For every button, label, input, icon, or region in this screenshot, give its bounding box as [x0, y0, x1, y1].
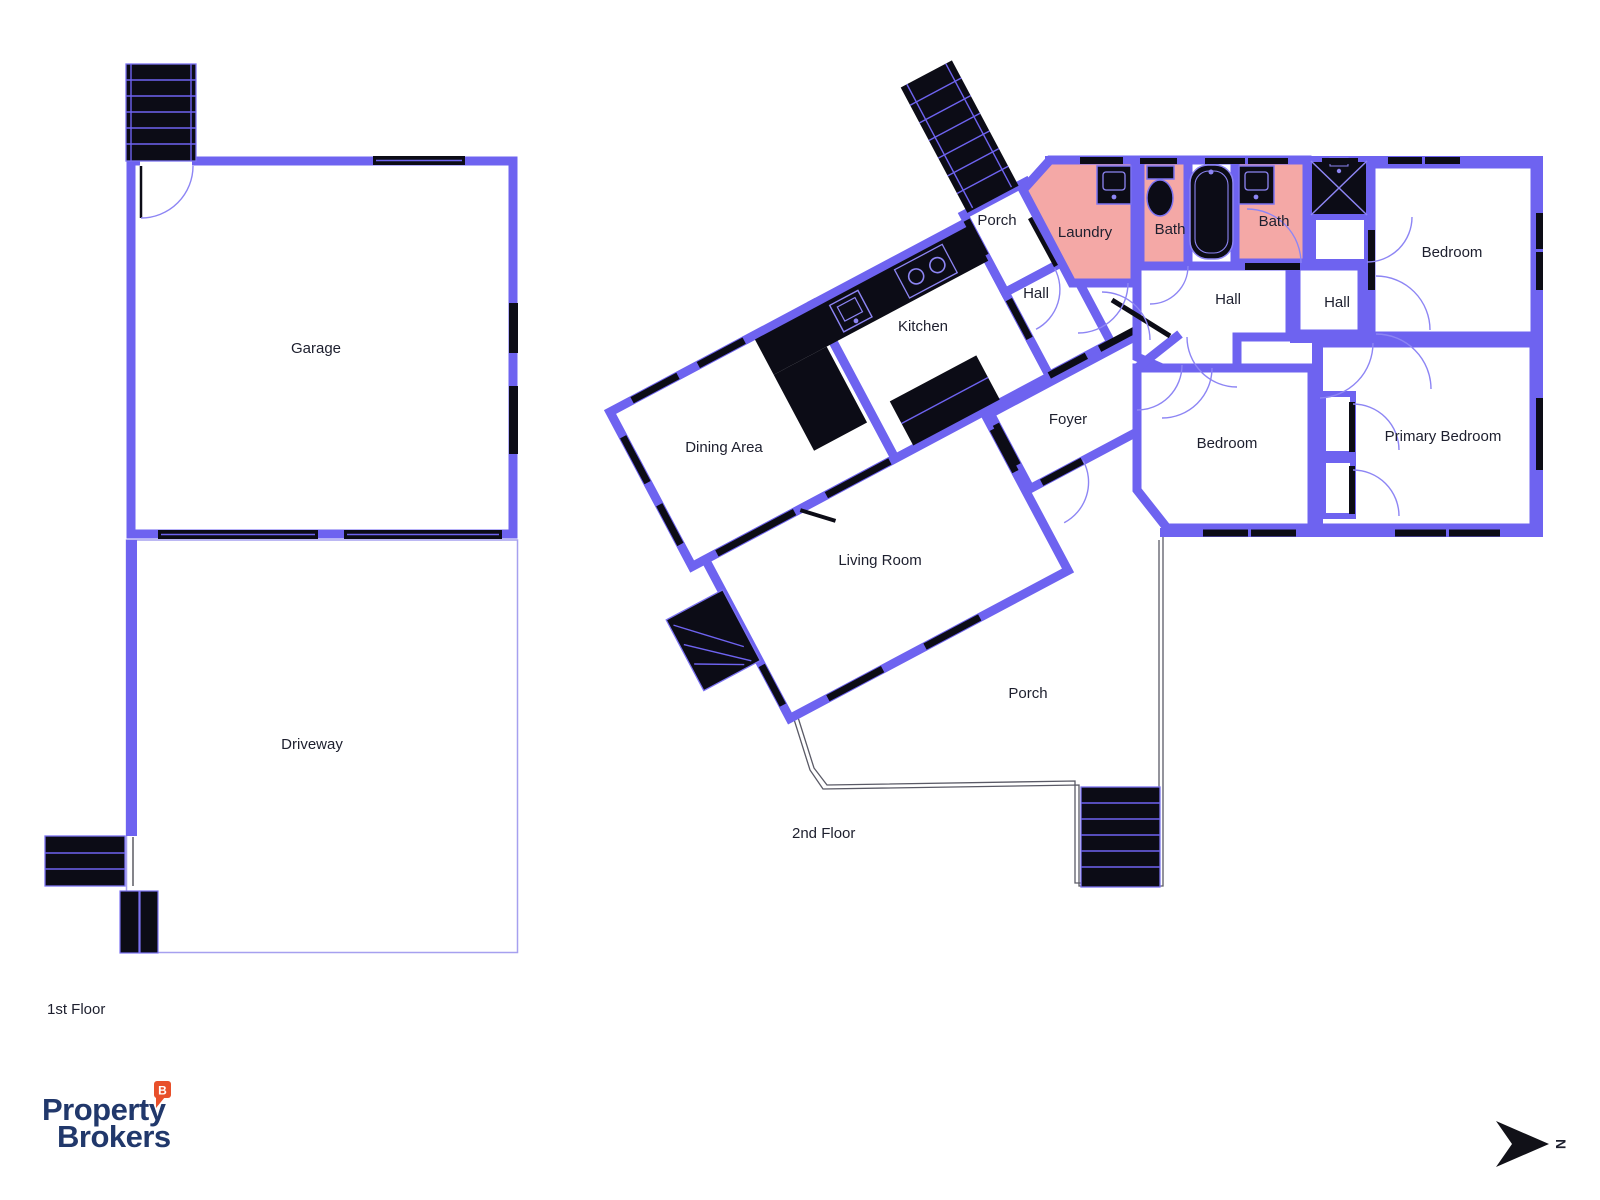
first-floor-plan — [45, 64, 518, 953]
closet-primary-1 — [1323, 394, 1353, 454]
floorplan-page: Garage Driveway Porch Hall Laundry Bath … — [0, 0, 1600, 1200]
closet-door-2 — [1349, 466, 1355, 514]
label-porch-top: Porch — [977, 212, 1016, 229]
bath-sink-icon — [1239, 166, 1274, 204]
label-garage: Garage — [291, 340, 341, 357]
porch-stairs-icon — [901, 60, 1019, 213]
floorplan-canvas: Garage Driveway Porch Hall Laundry Bath … — [0, 0, 1600, 1200]
exterior-stairs-icon — [1081, 787, 1160, 887]
logo-line2: Brokers — [57, 1119, 171, 1154]
label-porch-bottom: Porch — [1008, 685, 1047, 702]
closet-shower — [1313, 217, 1367, 262]
north-arrow-icon: N — [1496, 1121, 1569, 1167]
toilet-icon — [1147, 166, 1174, 216]
second-floor-plan — [497, 18, 1543, 887]
label-foyer: Foyer — [1049, 411, 1087, 428]
label-driveway: Driveway — [281, 736, 343, 753]
label-bath-left: Bath — [1155, 221, 1186, 238]
label-kitchen: Kitchen — [898, 318, 948, 335]
bathtub-icon — [1190, 165, 1233, 259]
north-label: N — [1553, 1139, 1569, 1149]
garage-stairs-icon — [126, 64, 196, 161]
driveway-stairs-icon — [45, 836, 125, 886]
label-living-room: Living Room — [838, 552, 921, 569]
label-hall-small: Hall — [1324, 294, 1350, 311]
label-laundry: Laundry — [1058, 224, 1113, 241]
label-dining-area: Dining Area — [685, 439, 763, 456]
driveway-left-wall — [126, 540, 137, 836]
label-first-floor: 1st Floor — [47, 1001, 105, 1018]
driveway-gate-icon — [120, 891, 158, 953]
label-bedroom-middle: Bedroom — [1197, 435, 1258, 452]
label-hall-main: Hall — [1215, 291, 1241, 308]
label-second-floor: 2nd Floor — [792, 825, 855, 842]
shower-icon — [1311, 158, 1367, 215]
label-hall-wing: Hall — [1023, 285, 1049, 302]
label-primary-bedroom: Primary Bedroom — [1385, 428, 1502, 445]
closet-primary-2 — [1323, 460, 1353, 516]
label-bedroom-top-right: Bedroom — [1422, 244, 1483, 261]
closet-door-1 — [1349, 402, 1355, 452]
property-brokers-logo: Property Brokers B — [42, 1081, 171, 1154]
logo-badge-letter: B — [158, 1084, 167, 1098]
label-bath-right: Bath — [1259, 213, 1290, 230]
laundry-sink-icon — [1097, 166, 1131, 204]
